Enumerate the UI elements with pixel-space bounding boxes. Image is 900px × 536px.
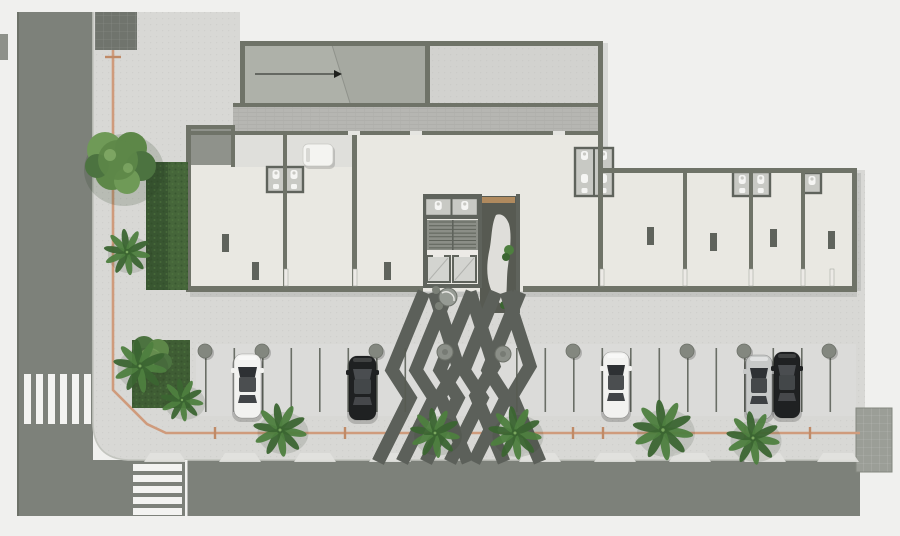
crosswalk-stripe [84, 374, 91, 424]
wc-cluster [425, 198, 478, 216]
guideline-tick [602, 427, 604, 439]
driveway-apron [294, 453, 336, 462]
door-slab [830, 269, 834, 286]
guideline-tick [344, 427, 346, 439]
crosswalk-stripe [133, 464, 182, 471]
door-slab [600, 269, 604, 286]
utility-block [95, 12, 137, 50]
parking-stall-line [516, 348, 518, 412]
left-road-edge-line [17, 12, 19, 516]
car [771, 352, 803, 422]
walkway-planter-core [500, 351, 506, 357]
road-median [0, 34, 8, 60]
guideline-tick [105, 56, 121, 58]
bollard [822, 344, 836, 358]
door-slab [683, 269, 687, 286]
door-gap [410, 131, 422, 135]
site-plan-canvas [0, 0, 900, 536]
parking-stall-line [405, 348, 407, 412]
column [252, 262, 259, 280]
door-slab [749, 269, 753, 286]
interior-wall-1 [283, 133, 287, 288]
right-wing-top-wall [600, 168, 857, 173]
parking-stall-line [291, 348, 293, 412]
crosswalk-stripe [133, 508, 182, 515]
corridor-bottom-wall [186, 131, 602, 135]
site-plan [0, 0, 900, 536]
door-slab [353, 269, 357, 286]
gray-room-top-wall [186, 125, 235, 129]
crosswalk-stripe [24, 374, 31, 424]
bollard [369, 344, 383, 358]
column [647, 227, 654, 245]
corridor-top-wall [233, 103, 602, 107]
car [600, 352, 632, 422]
interior-wall-2 [352, 133, 357, 288]
driveway-apron [144, 453, 186, 462]
bollard [680, 344, 694, 358]
crosswalk-stripe [133, 486, 182, 493]
top-left-wall [240, 41, 245, 105]
utility-pad [856, 408, 892, 472]
walkway-planter-core [442, 349, 448, 355]
door-slab [801, 269, 805, 286]
wc-cluster [803, 173, 821, 193]
column [828, 231, 835, 249]
crosswalk-stripe [48, 374, 55, 424]
column [384, 262, 391, 280]
central-wall [598, 41, 603, 291]
stop-line [185, 460, 188, 516]
driveway-apron [817, 453, 859, 462]
guideline-tick [572, 427, 574, 439]
stair-center-rail [452, 220, 454, 250]
driveway-apron [219, 453, 261, 462]
guideline-tick [809, 427, 811, 439]
door-slab [284, 269, 288, 286]
parking-stall-line [716, 348, 718, 412]
column [710, 233, 717, 251]
crosswalk-stripe [133, 497, 182, 504]
bollard [737, 344, 751, 358]
car [231, 354, 264, 422]
crosswalk-stripe [60, 374, 67, 424]
front-wall-right [523, 286, 857, 292]
right-wing-right-wall [852, 168, 857, 292]
ramp-court-wall [425, 43, 430, 105]
parking-stall-line [319, 348, 321, 412]
left-road [17, 12, 93, 516]
bollard [198, 344, 212, 358]
court-texture [425, 43, 602, 105]
guideline-tick [214, 427, 216, 439]
parking-stall-line [545, 348, 547, 412]
corridor-texture [233, 103, 602, 133]
top-wall [240, 41, 602, 46]
crosswalk-stripe [72, 374, 79, 424]
column [770, 229, 777, 247]
driveway-apron [594, 453, 636, 462]
door-gap [553, 131, 565, 135]
door-gap [348, 131, 360, 135]
gray-room-right-wall [231, 125, 235, 167]
column [222, 234, 229, 252]
car [346, 356, 379, 424]
white-van [303, 144, 335, 169]
crosswalk-stripe [133, 475, 182, 482]
front-wall-left [186, 286, 423, 292]
bollard [566, 344, 580, 358]
crosswalk-stripe [36, 374, 43, 424]
entrance-mat [481, 197, 515, 203]
